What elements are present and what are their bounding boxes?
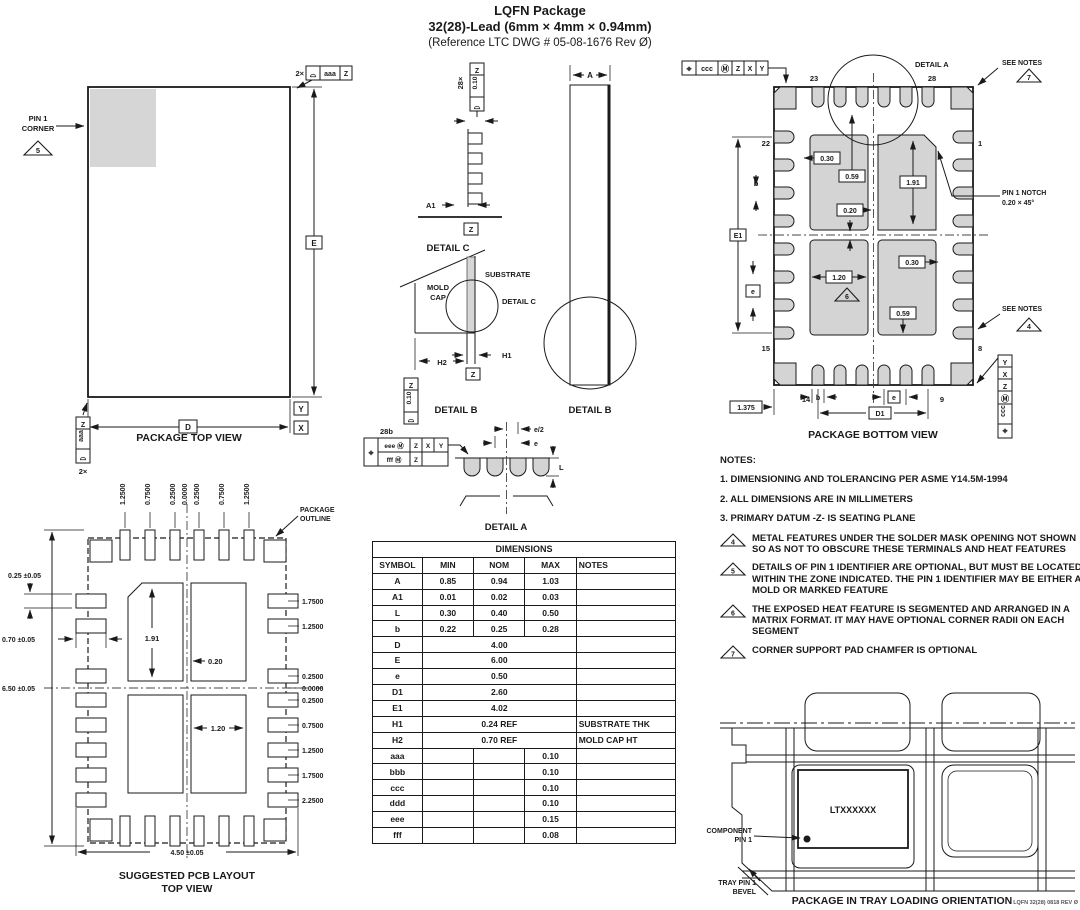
svg-text:e/2: e/2 [534,427,544,434]
chip-part-number: LTXXXXXX [830,805,876,815]
corner-pads [90,540,286,841]
svg-text:Y: Y [439,443,444,450]
svg-text:A: A [587,71,593,80]
table-title: DIMENSIONS [373,542,676,558]
position-symbol-icon: ⌖ [685,64,692,74]
dimensions-table: DIMENSIONS SYMBOL MIN NOM MAX NOTES A0.8… [372,541,676,844]
svg-text:E1: E1 [734,233,743,240]
dim-D: D [88,399,290,433]
svg-text:28: 28 [928,74,936,83]
profile-symbol-icon: ⌓ [310,70,317,79]
table-row: L0.300.400.50 [373,605,676,621]
svg-text:X: X [748,66,753,73]
lead-width-count: 28b [380,427,393,436]
svg-text:1.20: 1.20 [211,724,226,733]
package-outline-label: PACKAGE OUTLINE [276,507,335,536]
svg-text:ccc: ccc [1000,405,1007,417]
svg-text:8: 8 [978,344,982,353]
svg-text:0.10: 0.10 [472,76,479,89]
table-row: fff0.08 [373,828,676,844]
pin-numbers: 23 28 22 1 15 8 14 9 [762,74,983,404]
svg-text:D: D [185,423,191,432]
table-row: e0.50 [373,669,676,685]
position-tolerance-frame-top: ⌖ ccc Ⓜ Z X Y [682,61,786,83]
table-row: H10.24 REFSUBSTRATE THK [373,716,676,732]
mmc-symbol-icon: Ⓜ [1001,394,1009,404]
svg-text:BEVEL: BEVEL [733,889,757,896]
table-row: ccc0.10 [373,780,676,796]
package-bottom-view: ⌖ ccc Ⓜ Z X Y [680,55,1080,455]
svg-text:4: 4 [731,539,735,546]
pin1-zone-shading [90,89,156,167]
svg-text:Z: Z [344,71,349,78]
note6-flag-icon: 6 [720,604,746,618]
position-symbol-icon: ⌖ [367,448,374,458]
package-name: LQFN Package [0,3,1080,19]
note-1: 1. DIMENSIONING AND TOLERANCING PER ASME… [720,474,1080,485]
svg-text:OUTLINE: OUTLINE [300,516,331,523]
svg-text:1.91: 1.91 [145,634,160,643]
svg-text:fff Ⓜ: fff Ⓜ [387,455,402,464]
svg-text:1.2500: 1.2500 [302,748,324,755]
right-pocket [942,765,1038,857]
detail-c-ref-label: DETAIL C [502,297,536,306]
tray-view: LTXXXXXX COMPONENT PIN 1 TRAY PIN 1 BEVE… [690,715,1080,910]
note-2: 2. ALL DIMENSIONS ARE IN MILLIMETERS [720,494,1080,505]
pin1-notch-label: PIN 1 NOTCH 0.20 × 45° [938,151,1046,207]
svg-text:L: L [559,463,564,472]
detail-a-ref-label: DETAIL A [915,60,949,69]
datum-X: X [294,421,308,434]
svg-text:2×: 2× [295,69,304,78]
svg-text:0.20: 0.20 [843,208,857,215]
note-7: 7 CORNER SUPPORT PAD CHAMFER IS OPTIONAL [720,645,1080,659]
svg-text:1.2500: 1.2500 [244,483,251,505]
coordinate-labels-top: 1.2500 0.7500 0.2500 0.0000 0.2500 0.750… [120,483,251,528]
lead-count-label: 28× [456,76,465,89]
svg-text:e: e [751,289,755,296]
top-view-caption: PACKAGE TOP VIEW [136,432,242,444]
svg-text:H1: H1 [502,351,512,360]
svg-text:7: 7 [731,651,735,658]
svg-text:0.30: 0.30 [905,260,919,267]
serrated-lead-profile [468,129,482,207]
tray-caption: PACKAGE IN TRAY LOADING ORIENTATION [792,895,1013,907]
detail-a-view: 28b ⌖ eee Ⓜ Z X Y fff Ⓜ Z e/2 e [360,418,590,545]
svg-text:1.7500: 1.7500 [302,773,324,780]
dim-H1: H1 [452,351,512,360]
svg-text:X: X [426,443,431,450]
svg-text:5: 5 [731,569,735,576]
table-row: aaa0.10 [373,748,676,764]
table-row: D12.60 [373,685,676,701]
tray-left-edge [732,728,1075,891]
svg-text:X: X [298,424,304,433]
svg-text:23: 23 [810,74,818,83]
svg-text:0.10: 0.10 [406,391,413,404]
bottom-edge-pads [812,365,934,385]
notes-heading: NOTES: [720,455,1080,466]
svg-text:0.59: 0.59 [845,174,859,181]
svg-text:4.50 ±0.05: 4.50 ±0.05 [170,850,203,857]
svg-text:1.7500: 1.7500 [302,599,324,606]
see-notes-4: SEE NOTES 4 [978,306,1042,331]
note-3: 3. PRIMARY DATUM -Z- IS SEATING PLANE [720,513,1080,524]
svg-text:E: E [311,239,317,248]
svg-text:PIN 1 NOTCH: PIN 1 NOTCH [1002,190,1046,197]
svg-text:aaa: aaa [324,71,336,78]
svg-text:Z: Z [409,383,414,390]
svg-text:Z: Z [1003,384,1008,391]
notes-section: NOTES: 1. DIMENSIONING AND TOLERANCING P… [720,455,1080,666]
svg-text:2.2500: 2.2500 [302,798,324,805]
pin1-corner-label: PIN 1 [29,114,48,123]
svg-text:0.70 ±0.05: 0.70 ±0.05 [2,637,35,644]
svg-text:0.2500: 0.2500 [170,483,177,505]
package-lead-size: 32(28)-Lead (6mm × 4mm × 0.94mm) [0,19,1080,35]
table-row: b0.220.250.28 [373,621,676,637]
svg-text:Z: Z [414,457,418,464]
svg-text:Z: Z [475,68,480,75]
datum-Z-box: Z [464,223,478,235]
pin1-dot [804,836,811,843]
dim-e-half: e/2 [494,422,544,434]
svg-text:Y: Y [298,405,304,414]
svg-text:1.20: 1.20 [832,275,846,282]
lead-width-arrows [454,111,498,121]
note7-flag-icon: 7 [720,645,746,659]
svg-text:9: 9 [940,395,944,404]
dim-H2: H2 [415,338,464,370]
svg-text:0.30: 0.30 [820,156,834,163]
note5-flag-icon: 5 [720,562,746,576]
svg-text:Z: Z [81,422,86,429]
table-row: bbb0.10 [373,764,676,780]
table-row: A0.850.941.03 [373,573,676,589]
svg-text:14: 14 [802,395,811,404]
pcb-caption: SUGGESTED PCB LAYOUT [119,870,256,882]
svg-text:H2: H2 [437,358,447,367]
svg-text:22: 22 [762,139,770,148]
svg-text:SEE NOTES: SEE NOTES [1002,306,1042,313]
svg-text:0.7500: 0.7500 [219,483,226,505]
table-header-row: SYMBOL MIN NOM MAX NOTES [373,557,676,573]
svg-text:15: 15 [762,344,770,353]
svg-text:7: 7 [1027,75,1031,82]
svg-text:0.59: 0.59 [896,311,910,318]
pcb-layout-view: 1.2500 0.7500 0.2500 0.0000 0.2500 0.750… [0,458,362,910]
svg-text:ccc: ccc [701,66,713,73]
note-4: 4 METAL FEATURES UNDER THE SOLDER MASK O… [720,533,1080,556]
table-row: eee0.15 [373,812,676,828]
svg-text:Z: Z [469,225,474,234]
svg-text:0.7500: 0.7500 [302,723,324,730]
datum-Y: Y [294,402,308,415]
mmc-symbol-icon: Ⓜ [721,64,729,74]
svg-text:6: 6 [845,294,849,301]
svg-text:TRAY PIN 1: TRAY PIN 1 [718,880,756,887]
svg-text:COMPONENT: COMPONENT [707,828,753,835]
svg-text:Y: Y [760,66,765,73]
svg-text:PACKAGE: PACKAGE [300,507,335,514]
svg-text:0.25 ±0.05: 0.25 ±0.05 [8,573,41,580]
drawing-reference: (Reference LTC DWG # 05-08-1676 Rev Ø) [0,36,1080,50]
position-symbol-icon: ⌖ [1001,426,1008,436]
bottom-view-caption: PACKAGE BOTTOM VIEW [808,429,938,441]
svg-text:b: b [816,395,820,402]
chip-pocket [792,765,914,868]
note5-flag-triangle: 5 [24,141,52,155]
svg-text:4: 4 [1027,324,1031,331]
svg-text:0.7500: 0.7500 [145,483,152,505]
detail-c-view: 28× Z 0.10 ⌓ A1 Z DETAIL C [390,55,545,265]
note-6: 6 THE EXPOSED HEAT FEATURE IS SEGMENTED … [720,604,1080,638]
bottom-dimensions: 1.375 b e D1 [730,389,928,419]
table-row: E14.02 [373,700,676,716]
svg-text:0.20 × 45°: 0.20 × 45° [1002,199,1034,207]
package-top-view: PIN 1 CORNER 5 2× ⌓ aaa Z E D Y X Z aaa [0,55,355,455]
datum-Z-box: Z [466,368,480,380]
tray-pin1-bevel-label: TRAY PIN 1 BEVEL [718,869,760,896]
mold-cap-label: MOLD [427,283,450,292]
top-edge-pads [812,87,934,107]
svg-text:1.2500: 1.2500 [120,483,127,505]
drawing-rev-code: LQFN 32(28) 0818 REV Ø [1013,900,1079,906]
svg-text:A1: A1 [426,201,436,210]
svg-text:Z: Z [736,66,741,73]
svg-text:1.2500: 1.2500 [302,624,324,631]
tray-pockets-upper [805,693,1040,751]
profile-tolerance-frame-top: 2× ⌓ aaa Z [295,66,352,88]
see-notes-7: SEE NOTES 7 [978,60,1042,85]
svg-text:0.0000: 0.0000 [182,483,189,505]
svg-text:6: 6 [731,610,735,617]
svg-text:PIN 1: PIN 1 [734,837,752,844]
svg-text:e: e [892,395,896,402]
svg-text:6.50 ±0.05: 6.50 ±0.05 [2,686,35,693]
svg-text:0.0000: 0.0000 [302,686,324,693]
profile-tolerance-frame: Z 0.10 ⌓ [470,63,484,111]
detail-b-caption: DETAIL B [435,405,478,416]
dim-E: E [292,87,322,397]
svg-text:Z: Z [414,443,418,450]
svg-text:D1: D1 [876,411,885,418]
substrate-section [467,257,475,333]
pin1-corner-label2: CORNER [22,124,55,133]
table-row: A10.010.020.03 [373,589,676,605]
svg-text:SEE NOTES: SEE NOTES [1002,60,1042,67]
svg-text:0.2500: 0.2500 [302,698,324,705]
table-row: E6.00 [373,653,676,669]
drawing-title: LQFN Package 32(28)-Lead (6mm × 4mm × 0.… [0,3,1080,50]
composite-position-frame: ⌖ eee Ⓜ Z X Y fff Ⓜ Z [364,438,468,466]
position-tolerance-frame-right: Y X Z Ⓜ ccc ⌖ [977,355,1012,438]
svg-text:5: 5 [36,146,40,155]
table-row: ddd0.10 [373,796,676,812]
svg-text:Z: Z [471,370,476,379]
svg-text:1.91: 1.91 [906,180,920,187]
profile-symbol-icon: ⌓ [474,102,481,111]
svg-text:aaa: aaa [78,430,85,442]
dim-pad-height: 0.25 ±0.05 [8,573,72,619]
dim-A: A [570,65,610,81]
svg-text:0.20: 0.20 [208,657,223,666]
table-row: H20.70 REFMOLD CAP HT [373,732,676,748]
table-row: D4.00 [373,637,676,653]
note4-flag-icon: 4 [720,533,746,547]
substrate-lead-lines [467,333,475,364]
left-pads [76,594,106,807]
svg-text:X: X [1003,372,1008,379]
detail-a-caption: DETAIL A [485,522,528,533]
dim-e: e [483,436,538,448]
svg-text:1.375: 1.375 [737,405,755,412]
substrate-label: SUBSTRATE [485,270,530,279]
svg-text:CAP: CAP [430,293,446,302]
svg-text:eee Ⓜ: eee Ⓜ [384,441,404,450]
note-5: 5 DETAILS OF PIN 1 IDENTIFIER ARE OPTION… [720,562,1080,596]
svg-text:Y: Y [1003,360,1008,367]
svg-text:e: e [534,441,538,448]
svg-text:1: 1 [978,139,982,148]
pcb-caption2: TOP VIEW [162,883,213,895]
svg-text:0.2500: 0.2500 [302,674,324,681]
svg-text:0.2500: 0.2500 [194,483,201,505]
